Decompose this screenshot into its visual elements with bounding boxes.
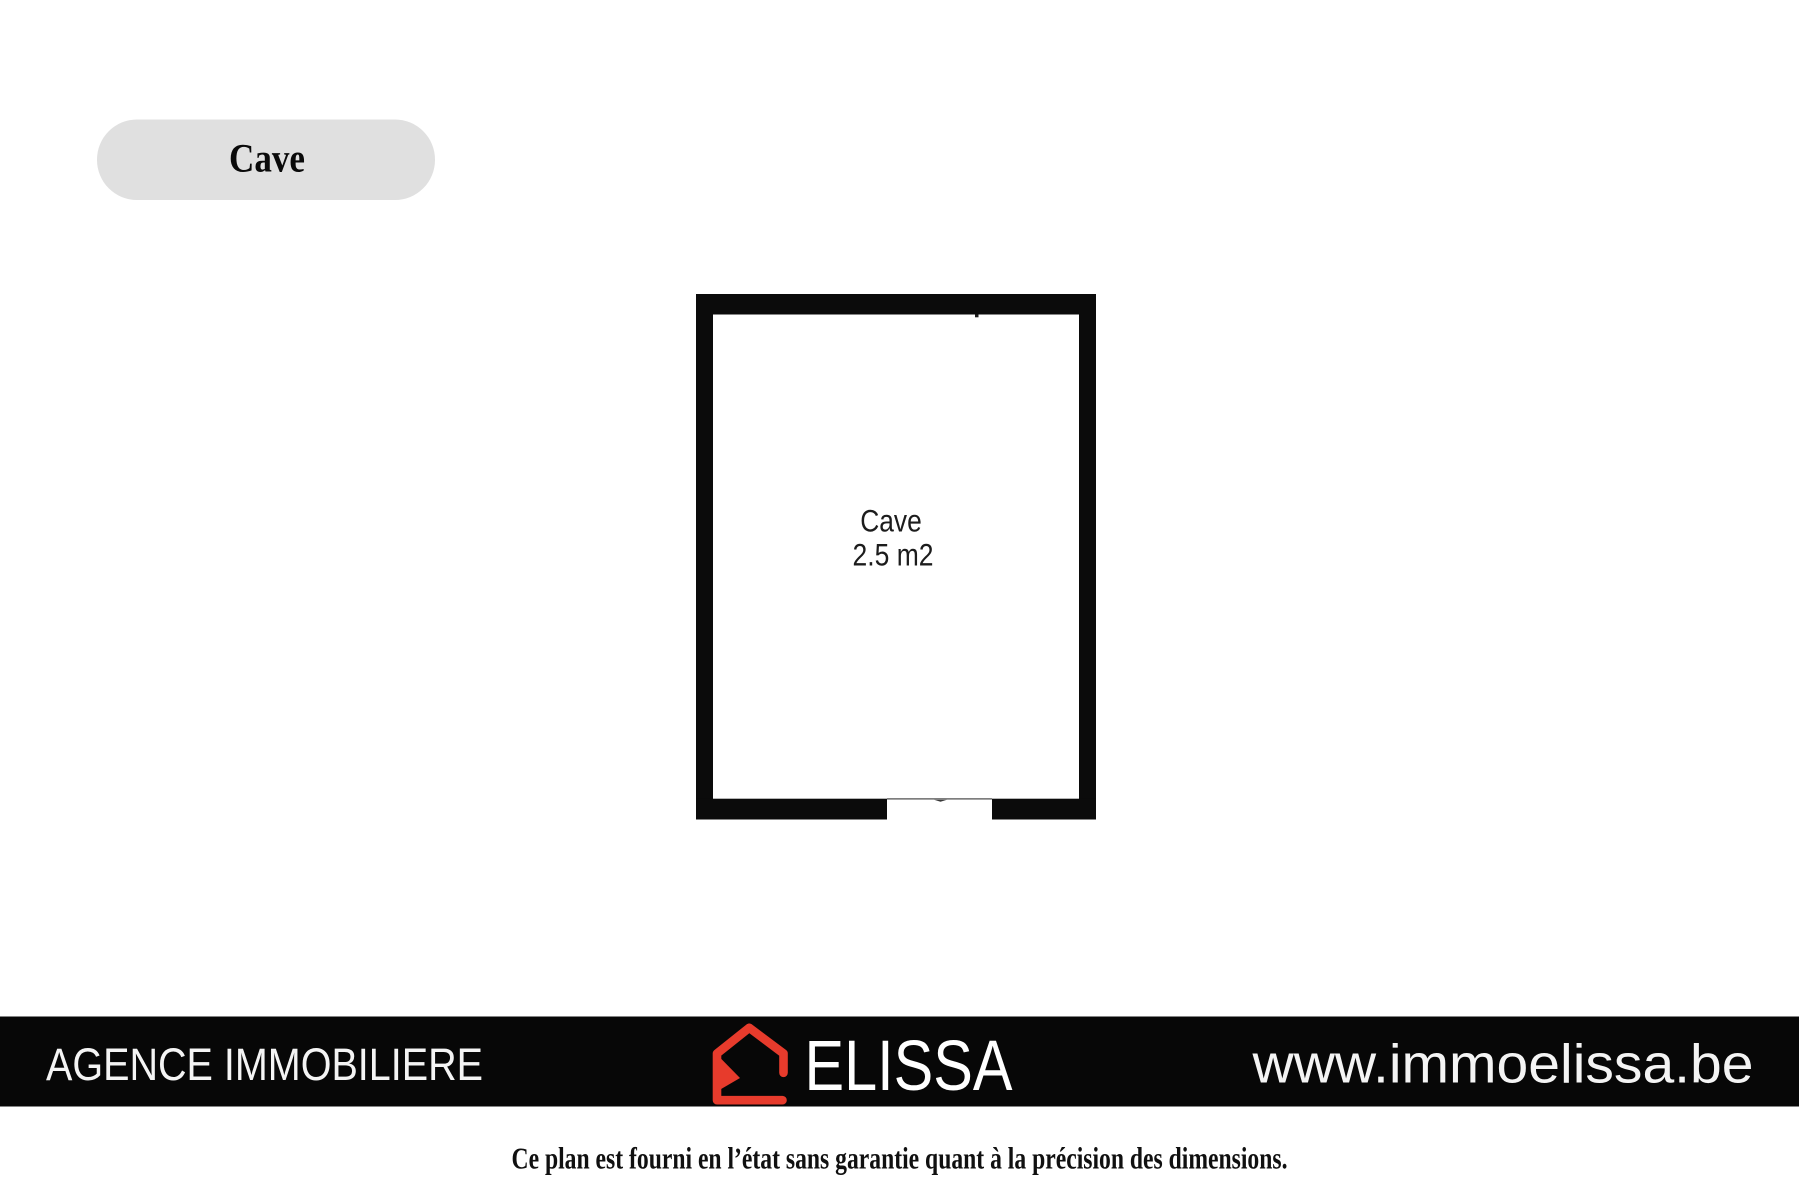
svg-text:www.immoelissa.be: www.immoelissa.be [1251,1033,1753,1095]
svg-text:Cave: Cave [229,135,305,180]
svg-text:ELISSA: ELISSA [805,1027,1014,1106]
svg-text:Cave: Cave [860,503,922,539]
svg-text:Ce plan est fourni en l’état s: Ce plan est fourni en l’état sans garant… [512,1140,1288,1175]
svg-text:AGENCE IMMOBILIERE: AGENCE IMMOBILIERE [46,1039,483,1090]
svg-text:2.5 m2: 2.5 m2 [853,537,934,573]
